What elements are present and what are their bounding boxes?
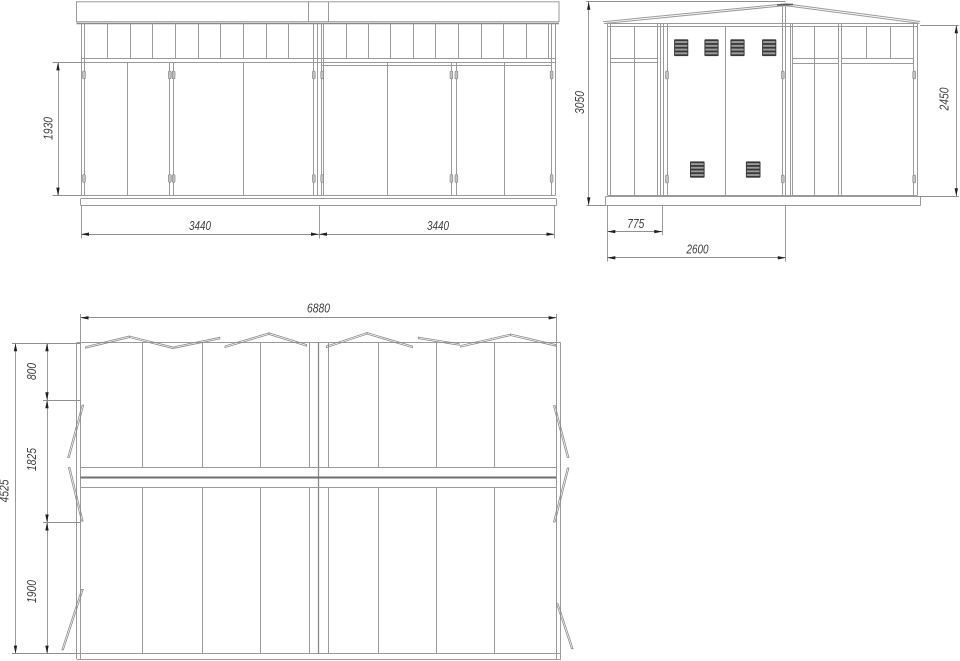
svg-text:1825: 1825 bbox=[24, 447, 39, 471]
svg-text:4525: 4525 bbox=[0, 479, 12, 503]
svg-text:775: 775 bbox=[627, 216, 645, 231]
svg-text:3440: 3440 bbox=[427, 218, 450, 233]
svg-text:2600: 2600 bbox=[686, 242, 709, 257]
svg-text:2450: 2450 bbox=[936, 87, 951, 111]
svg-text:800: 800 bbox=[24, 362, 39, 380]
svg-text:6880: 6880 bbox=[307, 301, 331, 316]
svg-text:1930: 1930 bbox=[40, 116, 55, 140]
svg-text:3440: 3440 bbox=[189, 218, 212, 233]
svg-text:3050: 3050 bbox=[572, 90, 587, 114]
svg-text:1900: 1900 bbox=[24, 579, 39, 603]
